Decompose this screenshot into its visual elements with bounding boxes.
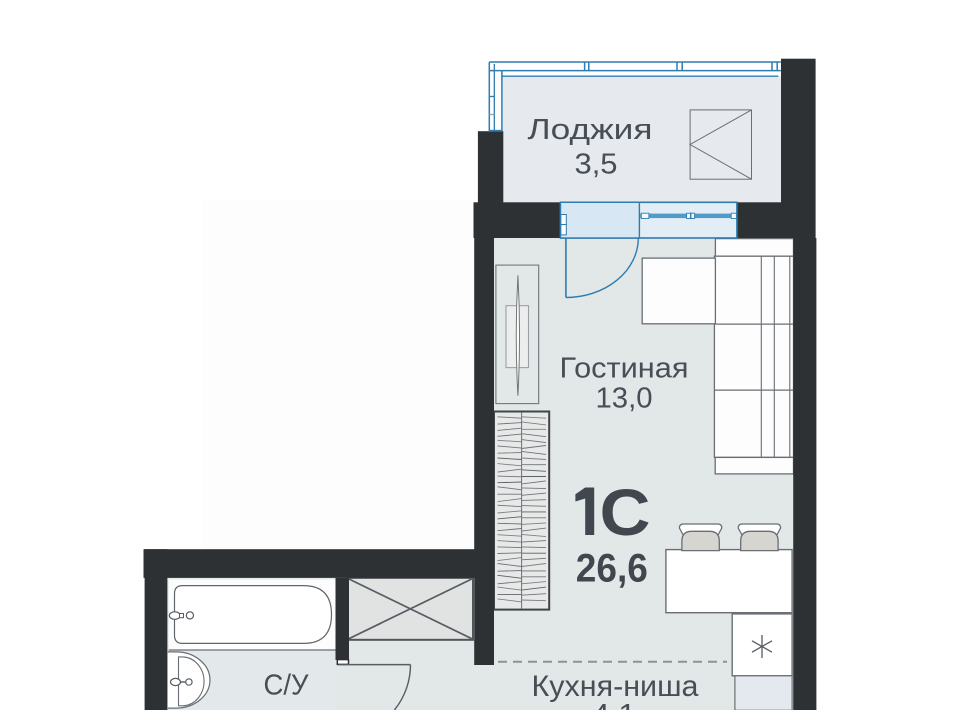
svg-text:26,6: 26,6 <box>576 547 648 591</box>
svg-text:13,0: 13,0 <box>596 383 653 415</box>
svg-text:4,1: 4,1 <box>592 699 636 710</box>
svg-text:С/У: С/У <box>264 670 310 702</box>
svg-text:Лоджия: Лоджия <box>528 114 653 146</box>
svg-text:С: С <box>600 475 651 549</box>
svg-text:Гостиная: Гостиная <box>560 353 689 385</box>
svg-text:3,5: 3,5 <box>575 149 618 181</box>
